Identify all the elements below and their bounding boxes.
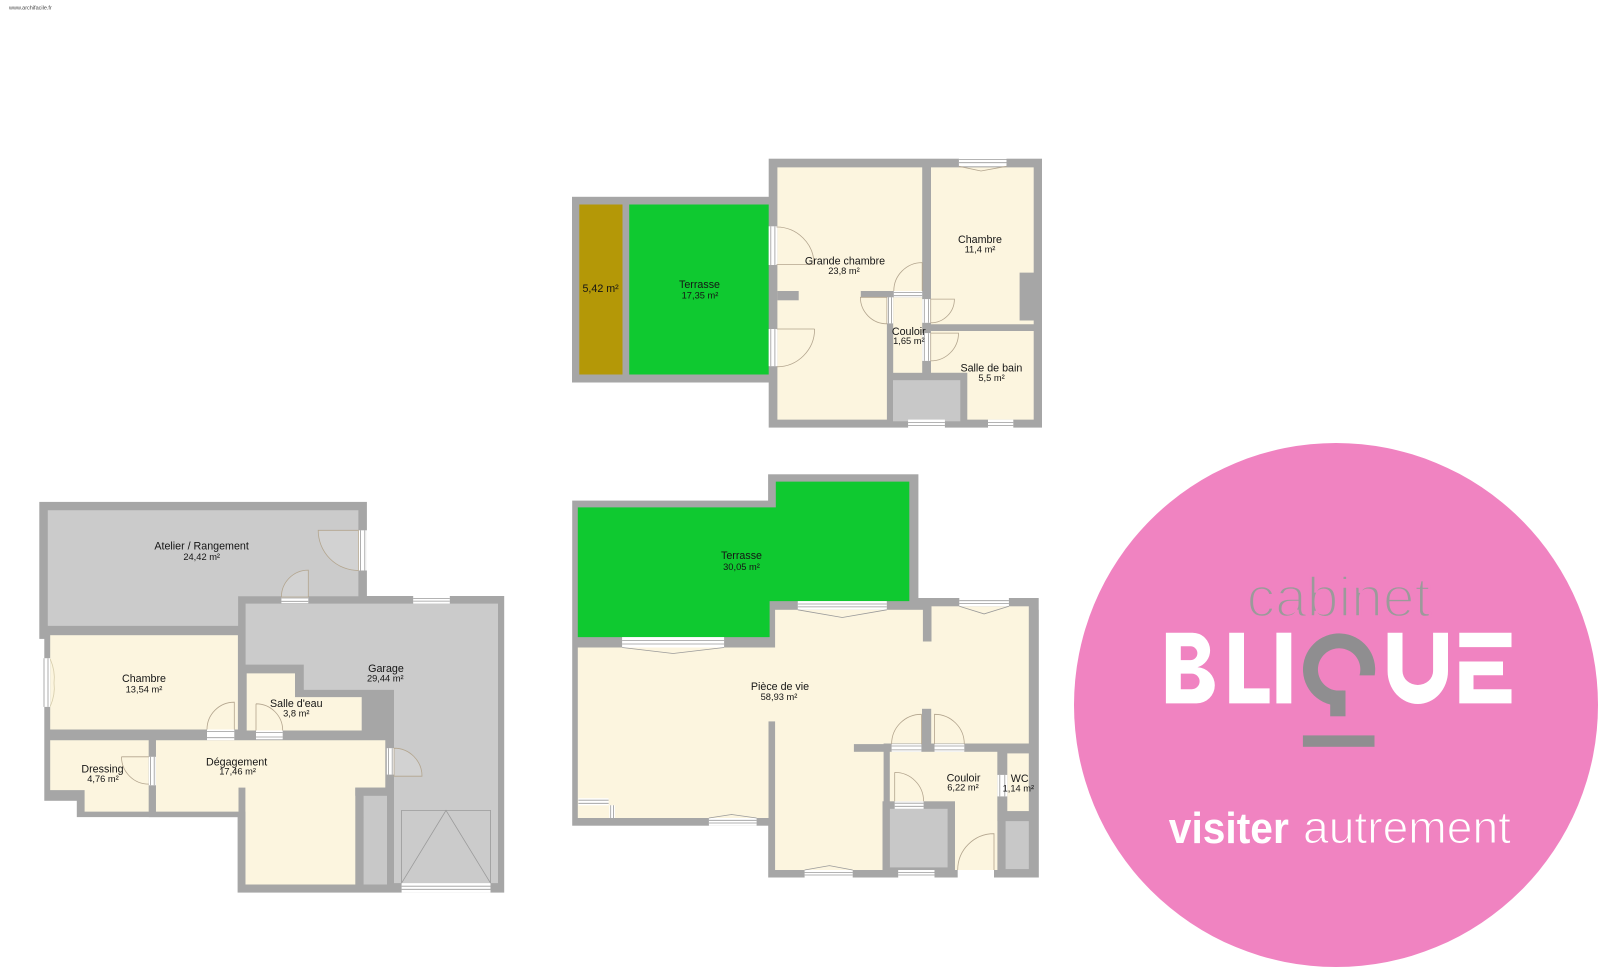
svg-text:17,35 m²: 17,35 m² [682,291,719,301]
svg-text:Chambre: Chambre [122,673,166,685]
svg-text:4,76 m²: 4,76 m² [87,774,119,784]
svg-text:autrement: autrement [1303,802,1511,853]
svg-text:1,65 m²: 1,65 m² [893,336,925,346]
svg-text:visiter: visiter [1169,804,1289,853]
svg-text:cabinet: cabinet [1247,566,1431,630]
svg-text:5,42 m²: 5,42 m² [582,283,619,295]
svg-text:Atelier / Rangement: Atelier / Rangement [154,540,248,552]
svg-text:24,42 m²: 24,42 m² [183,552,220,562]
svg-text:17,46 m²: 17,46 m² [219,767,256,777]
svg-text:5,5 m²: 5,5 m² [978,373,1004,383]
svg-text:11,4 m²: 11,4 m² [965,244,996,254]
svg-text:www.archifacile.fr: www.archifacile.fr [8,6,52,12]
svg-text:58,93 m²: 58,93 m² [761,692,798,702]
svg-text:6,22 m²: 6,22 m² [947,782,979,792]
svg-text:29,44 m²: 29,44 m² [367,674,404,684]
svg-text:Terrasse: Terrasse [721,550,762,562]
svg-text:30,05 m²: 30,05 m² [723,562,760,572]
svg-text:1,14 m²: 1,14 m² [1003,783,1035,793]
svg-text:23,8 m²: 23,8 m² [828,266,860,276]
svg-text:13,54 m²: 13,54 m² [126,685,163,695]
svg-text:Terrasse: Terrasse [679,279,720,291]
svg-text:3,8 m²: 3,8 m² [283,708,309,718]
